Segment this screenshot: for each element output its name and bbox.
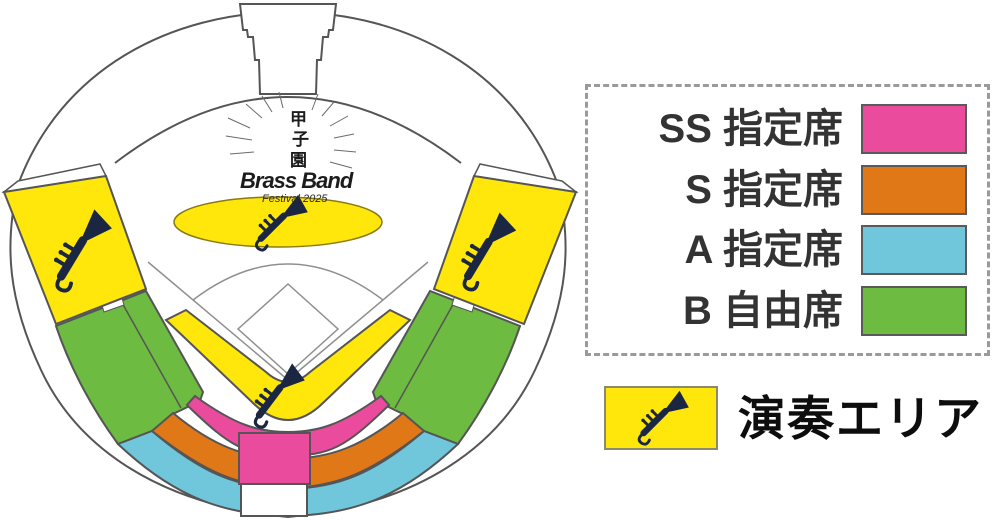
legend-label-s: S 指定席 [685, 170, 843, 210]
performance-legend-swatch [604, 386, 718, 450]
legend-swatch-b [861, 286, 967, 336]
performance-legend-label: 演奏エリア [738, 395, 983, 442]
logo-subtitle: Festival 2025 [262, 193, 328, 205]
legend-swatch-s [861, 165, 967, 215]
legend-row-a: A 指定席 [598, 224, 967, 276]
logo-name: Brass Band [240, 168, 354, 193]
legend-label-b: B 自由席 [683, 291, 843, 331]
seating-map-page: 甲 子 園 Brass Band Festival 2025 SS 指定席 S … [0, 0, 1000, 520]
seat-legend: SS 指定席 S 指定席 A 指定席 B 自由席 [585, 84, 990, 356]
legend-swatch-ss [861, 104, 967, 154]
logo-kanji-2: 子 [292, 130, 309, 149]
legend-label-ss: SS 指定席 [659, 109, 843, 149]
ss-center-column [239, 433, 310, 484]
trumpet-icon [632, 389, 690, 447]
performance-legend: 演奏エリア [604, 386, 983, 450]
backstop-white-column [241, 484, 307, 516]
legend-label-a: A 指定席 [684, 230, 843, 270]
stadium-map: 甲 子 園 Brass Band Festival 2025 [0, 0, 580, 520]
legend-swatch-a [861, 225, 967, 275]
legend-row-ss: SS 指定席 [598, 103, 967, 155]
legend-row-b: B 自由席 [598, 285, 967, 337]
logo-kanji-1: 甲 [290, 110, 307, 129]
legend-row-s: S 指定席 [598, 164, 967, 216]
